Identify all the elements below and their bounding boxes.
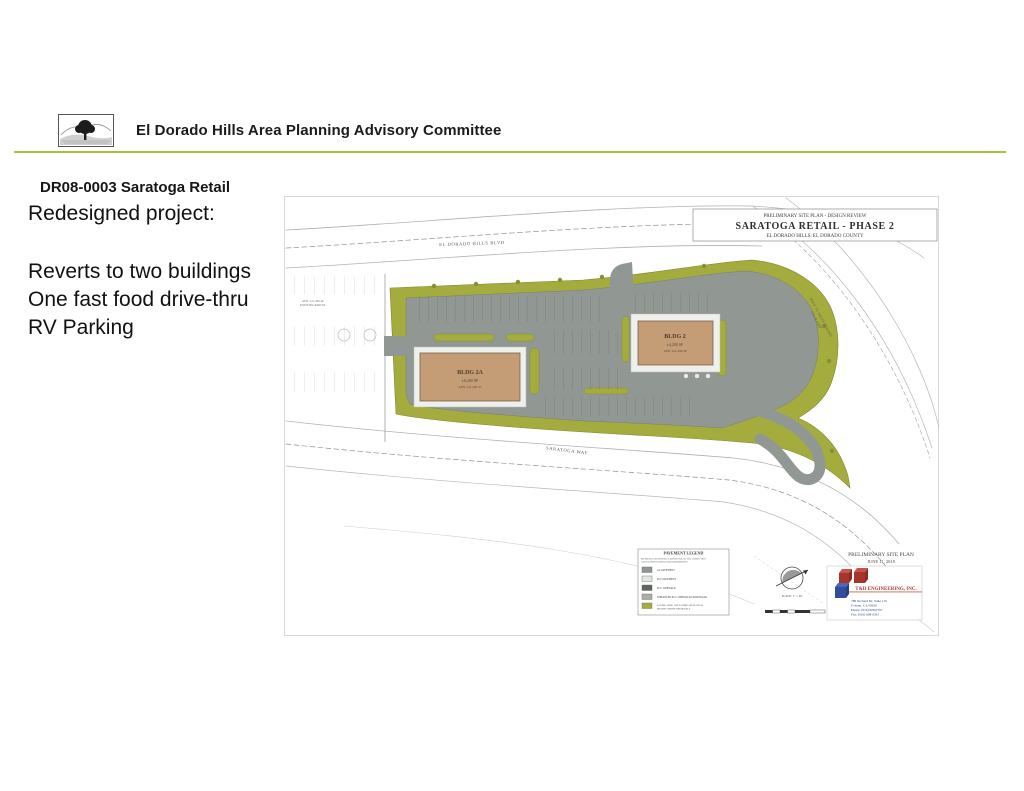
patio-tables (684, 374, 711, 379)
scale-bar (765, 610, 825, 613)
header-rule (14, 151, 1006, 153)
firm-name: T&D ENGINEERING, INC. (855, 587, 917, 592)
legend-note2: AND PAVEMENT COMPACTION REQUIREMENTS (641, 561, 688, 564)
title-line2: SARATOGA RETAIL - PHASE 2 (736, 221, 895, 232)
firm-fax: Fax: (916) 608-0291 (851, 613, 879, 617)
committee-title: El Dorado Hills Area Planning Advisory C… (136, 122, 501, 139)
legend-title: PAVEMENT LEGEND (664, 551, 704, 556)
logo-tree-canopy-left (75, 125, 83, 133)
title-line1: PRELIMINARY SITE PLAN - DESIGN REVIEW (763, 214, 866, 219)
bldg-2-name: BLDG 2 (664, 334, 686, 340)
plan-title-block: PRELIMINARY SITE PLAN - DESIGN REVIEW SA… (693, 209, 937, 241)
bldg-2a-apn: APN: 121-290-37 (459, 385, 482, 389)
slide-heading: Redesigned project: (28, 202, 215, 226)
svg-text:SPECIFICATIONS FOR DETAILS: SPECIFICATIONS FOR DETAILS (657, 607, 691, 610)
title-line3: EL DORADO HILLS, EL DORADO COUNTY (766, 234, 864, 239)
bldg-2-apn: APN: 121-290-38 (664, 349, 687, 353)
site-plan-image: APN: 121-290-40 EXISTING PARCEL (284, 196, 939, 636)
logo-tree-canopy-right (87, 125, 95, 133)
slide-bullets: Reverts to two buildings One fast food d… (28, 258, 251, 342)
bullet-drive-thru: One fast food drive-thru (28, 286, 251, 314)
project-id: DR08-0003 Saratoga Retail (40, 179, 230, 196)
bullet-two-buildings: Reverts to two buildings (28, 258, 251, 286)
west-parcel-note: EXISTING PARCEL (300, 303, 326, 307)
west-connector-drive (384, 336, 410, 356)
pavement-legend: PAVEMENT LEGEND REFERENCE GEOTECHNICAL R… (638, 549, 729, 615)
presentation-slide: El Dorado Hills Area Planning Advisory C… (0, 0, 1024, 791)
bldg-2a (420, 353, 520, 401)
bldg-2a-name: BLDG 2A (457, 370, 484, 376)
oak-tree-logo (58, 114, 114, 147)
svg-text:LANDSCAPING, SEE LANDSCAPE PLA: LANDSCAPING, SEE LANDSCAPE PLANS & (657, 604, 703, 607)
firm-phone: Phone: (916) 608-0707 (851, 608, 883, 612)
bullet-rv-parking: RV Parking (28, 314, 251, 342)
legend-note1: REFERENCE GEOTECHNICAL REPORT FOR ALL FI… (641, 558, 706, 561)
svg-text:ENHANCED PCC SIDEWALK/CROSSWAL: ENHANCED PCC SIDEWALK/CROSSWALK (657, 596, 707, 599)
firm-block: T&D ENGINEERING, INC. 789 Orchard Dr, Su… (827, 566, 922, 620)
svg-text:PCC SIDEWALK: PCC SIDEWALK (657, 587, 676, 590)
scale-label: SCALE: 1" = 40' (782, 594, 803, 598)
svg-text:AC PAVEMENT: AC PAVEMENT (657, 569, 675, 572)
svg-text:PCC PAVEMENT: PCC PAVEMENT (657, 578, 677, 581)
stamp-line1: PRELIMINARY SITE PLAN (848, 552, 914, 558)
site-plan-svg: APN: 121-290-40 EXISTING PARCEL (284, 196, 939, 636)
